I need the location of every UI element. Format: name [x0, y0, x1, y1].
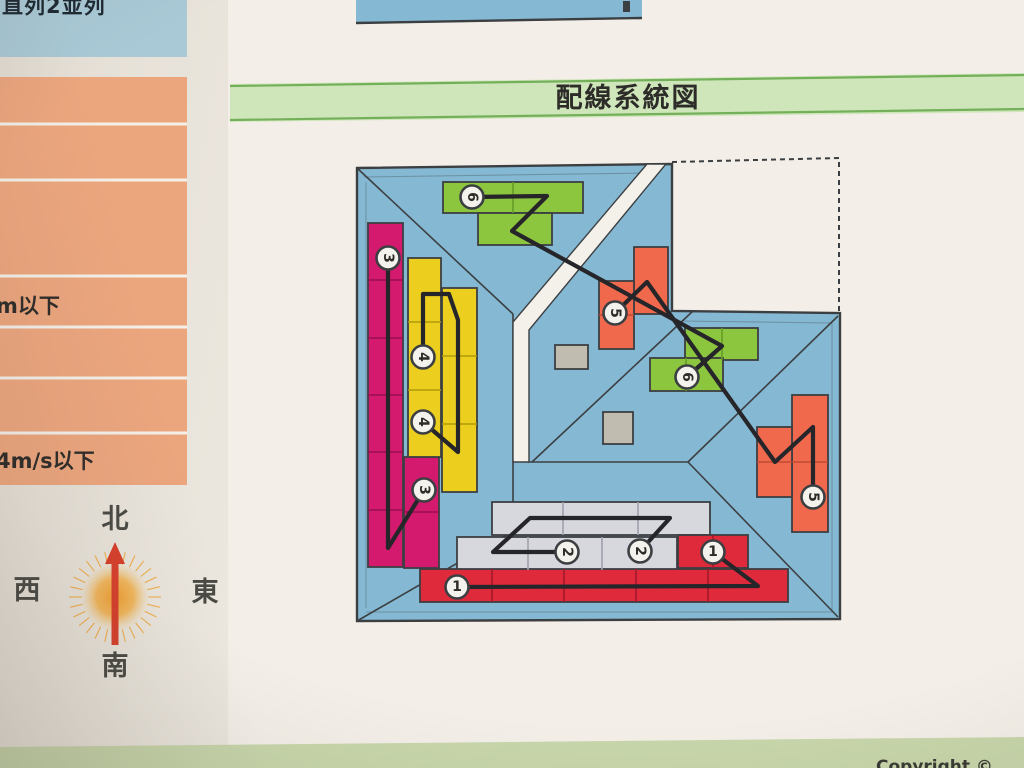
table-row-label-2: 4m/s以下	[0, 449, 95, 473]
string-marker-2: 2	[629, 540, 652, 563]
compass-north-label: 北	[102, 504, 129, 535]
compass-east-label: 東	[192, 577, 219, 608]
remnant-tick	[623, 1, 630, 12]
left-spec-table: m以下 4m/s以下	[0, 77, 187, 485]
table-row-label-1: m以下	[0, 294, 60, 318]
string-marker-label: 1	[708, 544, 718, 560]
sun-ray	[79, 618, 89, 626]
sun-ray	[147, 604, 160, 607]
string-marker-label: 2	[559, 547, 575, 557]
string-marker-6: 6	[461, 186, 484, 209]
string-marker-label: 3	[416, 485, 432, 495]
sun-ray	[86, 561, 94, 571]
footer-copyright: Copyright ©	[876, 757, 993, 768]
sun-ray	[147, 587, 160, 590]
string-marker-6: 6	[676, 366, 699, 389]
string-marker-label: 3	[380, 253, 396, 263]
left-spec-box-label: 直列2並列	[2, 0, 106, 18]
sun-ray	[141, 618, 151, 626]
string-marker-3: 3	[377, 247, 400, 270]
string-marker-5: 5	[802, 486, 825, 509]
string-marker-label: 5	[805, 492, 821, 502]
compass-arrow-head	[105, 542, 125, 564]
photographed-document-page: 配線系統図 直列2並列 m以下 4m/s以下 北 南 東 西	[0, 0, 1024, 768]
string-marker-label: 4	[415, 417, 431, 427]
panel-orange-east-a	[792, 395, 828, 532]
sun-ray	[95, 627, 101, 639]
string-marker-1: 1	[446, 576, 469, 599]
compass-rose: 北 南 東 西	[14, 504, 219, 682]
sun-ray	[145, 577, 157, 583]
string-marker-label: 6	[679, 372, 695, 382]
sun-ray	[79, 568, 89, 576]
sun-ray	[70, 604, 83, 607]
sun-ray	[74, 611, 86, 617]
sun-ray	[74, 577, 86, 583]
string-marker-1: 1	[702, 541, 725, 564]
left-spec-box: 直列2並列	[0, 0, 187, 57]
sun-ray	[145, 611, 157, 617]
string-marker-label: 4	[415, 352, 431, 362]
string-marker-2: 2	[556, 541, 579, 564]
section-title: 配線系統図	[556, 82, 701, 114]
string-marker-label: 6	[464, 192, 480, 202]
string-marker-label: 2	[632, 546, 648, 556]
compass-south-label: 南	[102, 651, 129, 682]
sun-ray	[105, 629, 108, 642]
wiring-diagram-figure: 配線系統図 直列2並列 m以下 4m/s以下 北 南 東 西	[0, 0, 1024, 768]
sun-ray	[141, 568, 151, 576]
sun-ray	[129, 627, 135, 639]
compass-west-label: 西	[14, 575, 41, 606]
roof-vent-b	[603, 412, 633, 444]
string-marker-4: 4	[412, 411, 435, 434]
sun-ray	[136, 623, 144, 633]
string-marker-4: 4	[412, 346, 435, 369]
roof-vent-a	[555, 345, 588, 369]
sun-ray	[122, 629, 125, 642]
sun-ray	[129, 556, 135, 568]
sun-ray	[95, 556, 101, 568]
string-marker-5: 5	[604, 302, 627, 325]
sun-ray	[70, 587, 83, 590]
string-marker-label: 5	[607, 308, 623, 318]
sun-ray	[136, 561, 144, 571]
string-marker-3: 3	[413, 479, 436, 502]
string-marker-label: 1	[452, 579, 462, 595]
sun-ray	[86, 623, 94, 633]
